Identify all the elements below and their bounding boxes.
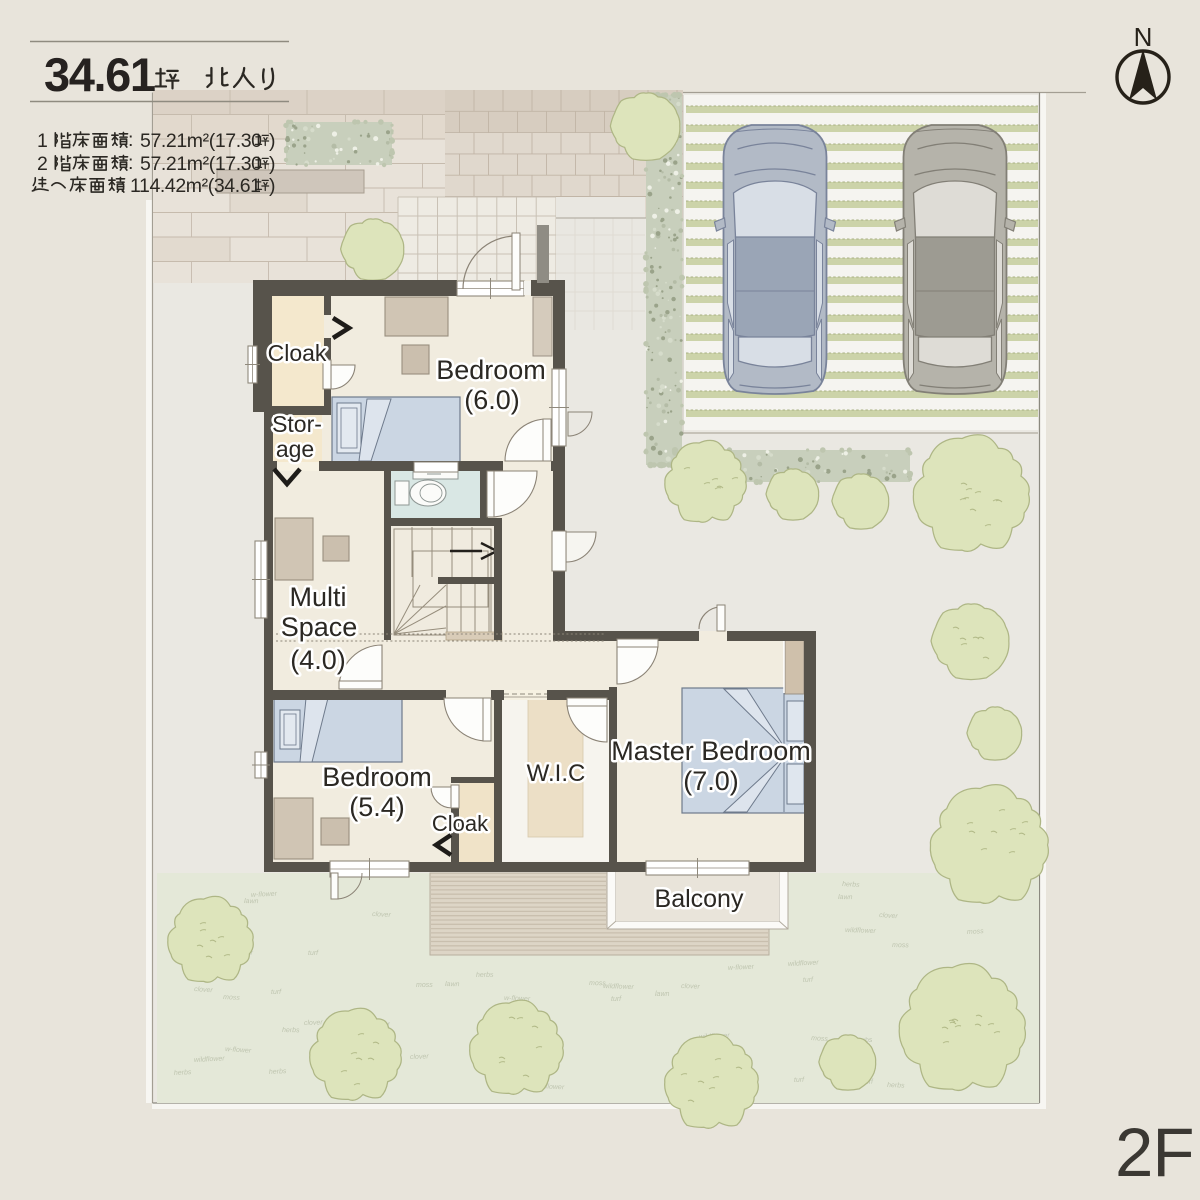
svg-text:wildflower: wildflower [603,983,635,991]
svg-text:moss: moss [589,980,606,987]
svg-text:lawn: lawn [445,981,460,988]
svg-text:Multi: Multi [289,582,346,612]
svg-text:(7.0): (7.0) [683,766,739,796]
svg-text:Bedroom: Bedroom [436,355,546,385]
svg-text:w-flower: w-flower [728,964,755,972]
svg-text:lawn: lawn [244,898,259,905]
svg-text:Balcony: Balcony [655,885,744,913]
svg-text:herbs: herbs [842,881,860,889]
svg-text:herbs: herbs [887,1082,905,1090]
svg-text:moss: moss [892,942,909,949]
svg-text:Space: Space [281,612,358,642]
svg-text:Stor-: Stor- [272,411,322,437]
svg-text:turf: turf [794,1077,805,1084]
svg-text:(4.0): (4.0) [290,645,346,675]
svg-text::: : [128,129,133,151]
svg-text:2: 2 [37,153,48,175]
svg-text:turf: turf [611,996,622,1003]
svg-text:57.21m²(17.30: 57.21m²(17.30 [140,153,262,175]
svg-text:Cloak: Cloak [268,340,327,366]
svg-text:lawn: lawn [655,991,670,998]
svg-text::: : [128,152,133,174]
svg-text:): ) [269,175,276,197]
svg-text:clover: clover [879,912,899,920]
svg-text:herbs: herbs [174,1069,192,1077]
svg-text:clover: clover [372,911,392,919]
svg-text:): ) [269,153,276,175]
svg-text:moss: moss [967,928,985,936]
svg-text:age: age [276,436,314,462]
svg-text:114.42m²(34.61: 114.42m²(34.61 [130,175,261,197]
svg-text:Bedroom: Bedroom [322,762,432,792]
svg-text:lawn: lawn [838,894,853,901]
svg-text:moss: moss [416,982,433,989]
svg-text:herbs: herbs [282,1027,300,1034]
svg-text:moss: moss [223,994,241,1002]
svg-text:herbs: herbs [476,972,494,979]
svg-text:34.61: 34.61 [44,48,155,101]
svg-text:(5.4): (5.4) [349,792,405,822]
svg-text:57.21m²(17.30: 57.21m²(17.30 [140,130,262,152]
svg-text:1: 1 [37,130,48,152]
svg-text:W.I.C: W.I.C [527,760,586,787]
svg-text:herbs: herbs [269,1068,287,1076]
svg-text:moss: moss [811,1035,829,1043]
svg-text:Master Bedroom: Master Bedroom [611,736,811,766]
svg-text:clover: clover [304,1019,324,1027]
svg-text:clover: clover [194,986,214,994]
svg-text:turf: turf [271,989,282,996]
svg-text:2F: 2F [1115,1114,1194,1191]
svg-text:turf: turf [803,976,815,984]
svg-text:(6.0): (6.0) [464,385,520,415]
svg-text:): ) [269,130,276,152]
svg-text:wildflower: wildflower [845,927,877,935]
svg-text:clover: clover [410,1053,430,1061]
svg-text:clover: clover [681,983,701,991]
svg-text:N: N [1134,22,1153,52]
svg-text:Cloak: Cloak [432,811,489,836]
svg-text:turf: turf [308,950,319,957]
